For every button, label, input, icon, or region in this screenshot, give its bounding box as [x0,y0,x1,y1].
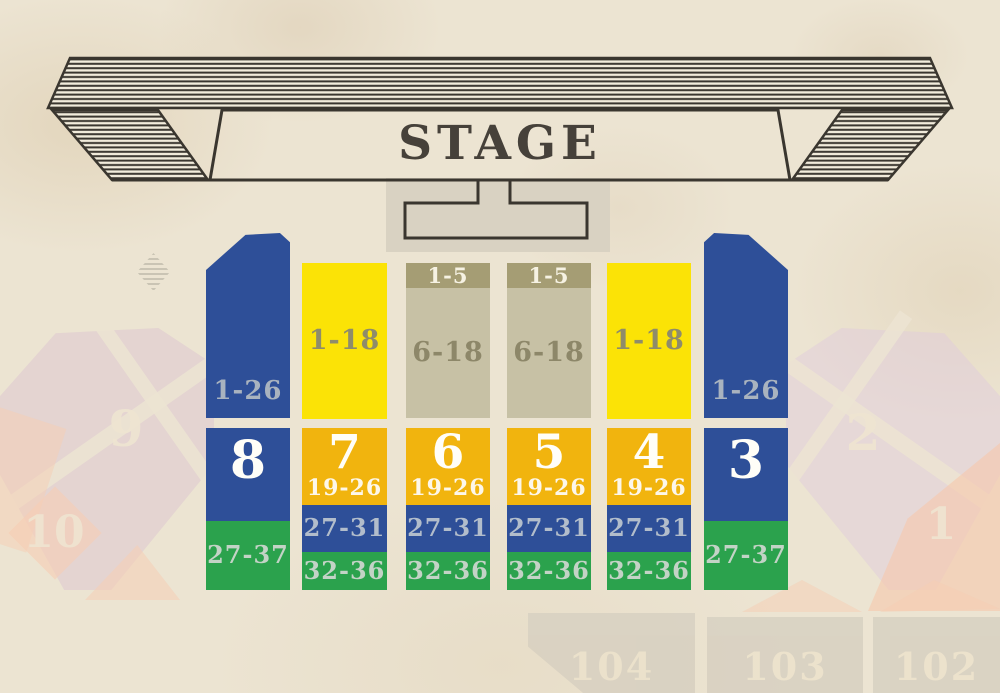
stage-apron-shade [386,178,610,252]
section-7-number: 7 [328,429,361,476]
background-section-103: 103 [707,617,863,693]
section-4-mid-label: 19-26 [611,476,686,500]
section-6-header: 1-5 [406,263,490,288]
banner-right-leg [792,110,948,180]
stage-label: STAGE [398,116,602,171]
section-7-mid-label: 19-26 [307,476,382,500]
section-5-number-block[interactable]: 5 19-26 [507,428,591,505]
banner-top-band [48,58,952,108]
section-3-top-block[interactable]: 1-26 [704,233,788,418]
section-6-header-label: 1-5 [428,264,469,287]
section-6-body: 6-18 [412,288,484,418]
section-6-top-block[interactable]: 1-5 6-18 [406,263,490,418]
section-3-bottom-block[interactable]: 27-37 [704,521,788,590]
section-5-top-label: 6-18 [513,338,585,368]
section-7-green-label: 32-36 [304,558,386,584]
section-5-mid-label: 19-26 [511,476,586,500]
stage-banner: STAGE [0,0,1000,260]
background-section-102-label: 102 [894,644,979,689]
section-7-blue-block[interactable]: 27-31 [302,505,387,552]
section-8-bottom-block[interactable]: 27-37 [206,521,290,590]
section-6-number: 6 [432,429,465,476]
section-6-blue-block[interactable]: 27-31 [406,505,490,552]
section-4-number: 4 [633,429,666,476]
section-3-number: 3 [728,435,764,487]
section-4-blue-block[interactable]: 27-31 [607,505,691,552]
section-4-green-label: 32-36 [608,558,690,584]
background-section-2-label: 2 [846,408,881,458]
section-6-green-block[interactable]: 32-36 [406,552,490,590]
section-3-top-label: 1-26 [711,377,780,406]
section-5-body: 6-18 [513,288,585,418]
background-section-10-label: 10 [23,511,84,555]
section-7-green-block[interactable]: 32-36 [302,552,387,590]
section-8-top-label: 1-26 [213,377,282,406]
section-3-bottom-label: 27-37 [705,542,787,568]
section-5-header: 1-5 [507,263,591,288]
section-5-blue-block[interactable]: 27-31 [507,505,591,552]
section-6-mid-label: 19-26 [410,476,485,500]
section-6-number-block[interactable]: 6 19-26 [406,428,490,505]
background-section-9-label: 9 [109,404,144,454]
section-8-number: 8 [230,435,266,487]
section-5-green-block[interactable]: 32-36 [507,552,591,590]
background-section-104-label: 104 [569,644,654,689]
section-5-top-block[interactable]: 1-5 6-18 [507,263,591,418]
section-4-green-block[interactable]: 32-36 [607,552,691,590]
section-8-number-block[interactable]: 8 [206,428,290,521]
section-8-top-block[interactable]: 1-26 [206,233,290,418]
section-7-top-label: 1-18 [309,326,381,356]
section-4-number-block[interactable]: 4 19-26 [607,428,691,505]
section-5-blue-label: 27-31 [508,515,590,541]
section-6-blue-label: 27-31 [407,515,489,541]
seating-chart: 9 10 2 1 104 103 102 STAGE 1-26 8 27-37 … [0,0,1000,693]
section-4-blue-label: 27-31 [608,515,690,541]
section-8-bottom-label: 27-37 [207,542,289,568]
banner-left-leg [52,110,208,180]
section-5-green-label: 32-36 [508,558,590,584]
background-section-1-label: 1 [926,503,957,547]
section-3-number-block[interactable]: 3 [704,428,788,521]
section-4-top-block[interactable]: 1-18 [607,263,691,419]
section-7-top-block[interactable]: 1-18 [302,263,387,419]
section-6-green-label: 32-36 [407,558,489,584]
section-5-header-label: 1-5 [529,264,570,287]
section-7-blue-label: 27-31 [304,515,386,541]
background-section-103-label: 103 [742,644,827,689]
background-section-102: 102 [873,617,1000,693]
section-5-number: 5 [533,429,566,476]
section-4-top-label: 1-18 [613,326,685,356]
section-7-number-block[interactable]: 7 19-26 [302,428,387,505]
section-6-top-label: 6-18 [412,338,484,368]
background-section-104: 104 [528,613,695,693]
